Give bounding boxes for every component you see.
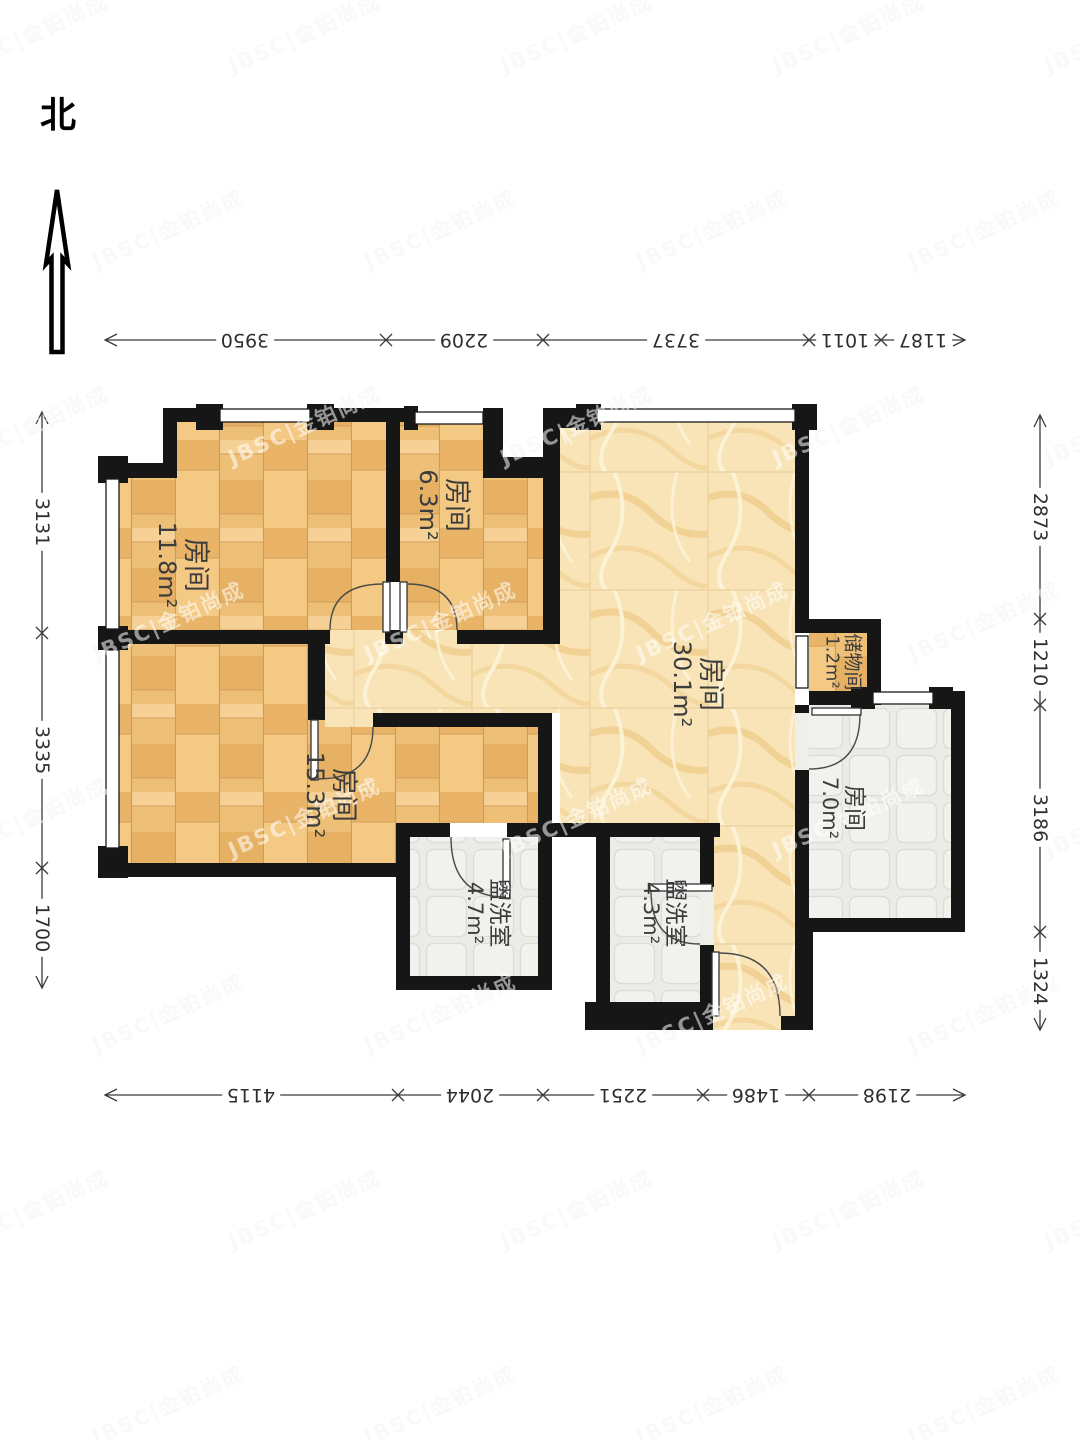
- door-leaf-washroom-east: [650, 884, 712, 891]
- door-leaf-room-east: [812, 708, 861, 715]
- door-leaf-bedroom-south: [311, 720, 318, 780]
- window-bedroom-mid-top: [415, 412, 483, 424]
- floor-bedroom-west: [119, 422, 386, 630]
- floor-washroom-west: [410, 837, 538, 976]
- floorplan-page: JBSC|金铂尚成JBSC|金铂尚成JBSC|金铂尚成JBSC|金铂尚成JBSC…: [0, 0, 1080, 1440]
- floor-bedroom-mid: [400, 422, 543, 630]
- window-west-wall-upper: [106, 479, 119, 629]
- door-leaf-washroom-west: [503, 839, 510, 898]
- window-room-east-top: [873, 692, 933, 704]
- window-west-wall-lower: [106, 650, 119, 848]
- north-arrow-icon: [46, 190, 68, 352]
- window-bedroom-west-top: [220, 409, 310, 422]
- storage-door-line: [796, 636, 808, 688]
- window-living-top: [597, 409, 795, 422]
- floor-washroom-east: [610, 837, 700, 1002]
- floor-storage: [809, 633, 867, 691]
- floor-room-east: [809, 705, 951, 918]
- floorplan-drawing: [0, 0, 1080, 1440]
- door-leaf-bedroom-mid: [400, 582, 407, 632]
- door-leaf-entry: [712, 952, 719, 1016]
- floor-corridor: [325, 644, 560, 713]
- door-leaf-bedroom-west: [383, 582, 390, 632]
